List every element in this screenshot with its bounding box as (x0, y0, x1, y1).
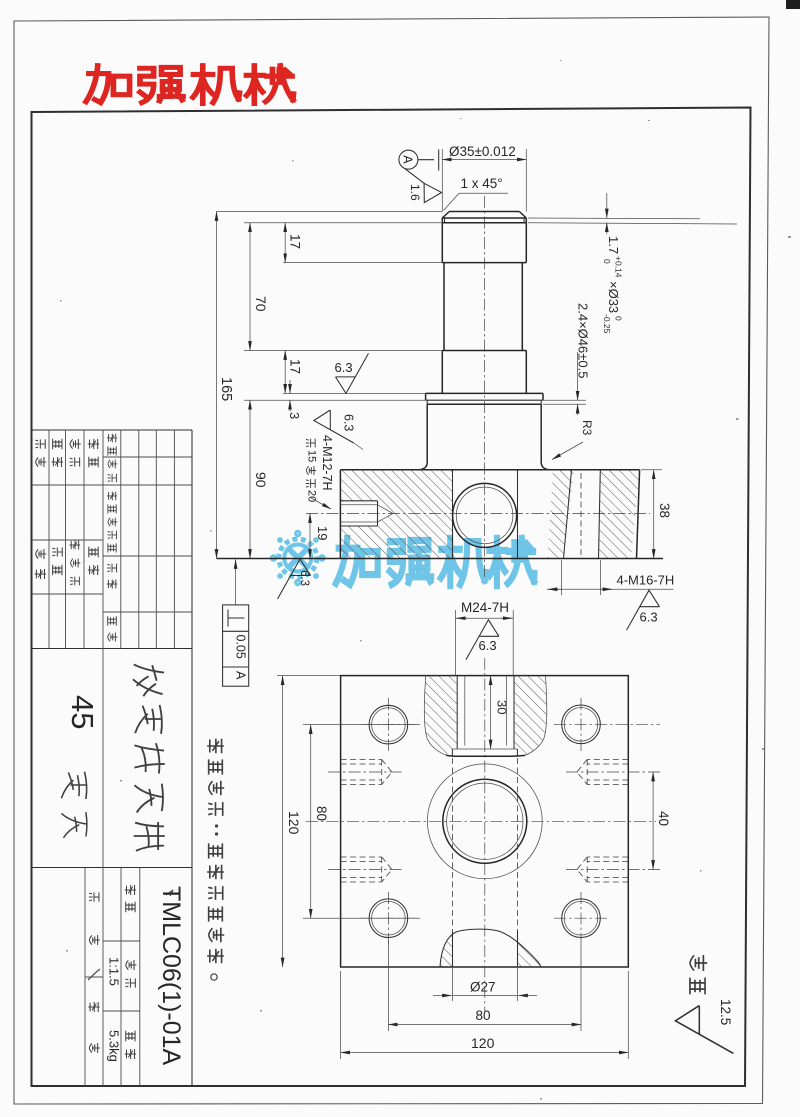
svg-text:4-M12-7H: 4-M12-7H (320, 435, 334, 491)
svg-text:×Ø33: ×Ø33 (606, 281, 621, 313)
svg-text:A: A (234, 671, 248, 680)
svg-text:120: 120 (471, 1035, 495, 1051)
svg-text:5.3kg: 5.3kg (107, 1030, 122, 1062)
svg-text:1.7: 1.7 (606, 236, 621, 254)
svg-text:Ø27: Ø27 (470, 980, 496, 995)
svg-text:15: 15 (306, 450, 318, 462)
svg-text:6.3: 6.3 (479, 638, 497, 653)
svg-text:1.6: 1.6 (408, 184, 422, 201)
svg-text:Ø35±0.012: Ø35±0.012 (449, 144, 516, 159)
svg-text:0: 0 (602, 259, 612, 264)
svg-text:17: 17 (288, 234, 303, 249)
svg-text:19: 19 (315, 526, 330, 540)
svg-text:M24-7H: M24-7H (461, 600, 509, 615)
svg-text:90: 90 (253, 472, 269, 488)
svg-text:3: 3 (287, 412, 302, 419)
svg-text:0: 0 (614, 316, 624, 321)
svg-text:38: 38 (657, 503, 672, 518)
svg-text:70: 70 (253, 296, 269, 312)
svg-text:-0.25: -0.25 (602, 314, 612, 334)
svg-text:1:1.5: 1:1.5 (107, 957, 122, 986)
svg-text:6.3: 6.3 (640, 610, 658, 625)
svg-text:6.3: 6.3 (335, 360, 353, 375)
svg-text:40: 40 (656, 811, 671, 826)
svg-text:2.4×Ø46±0.5: 2.4×Ø46±0.5 (576, 303, 591, 378)
svg-text:R3: R3 (580, 420, 594, 436)
svg-text:A: A (401, 155, 415, 164)
svg-text:TMLC06(1)-01A: TMLC06(1)-01A (157, 886, 185, 1066)
svg-text:80: 80 (314, 806, 329, 821)
svg-text:6.3: 6.3 (342, 414, 356, 431)
svg-text:80: 80 (476, 1008, 491, 1023)
svg-text:4-M16-7H: 4-M16-7H (617, 573, 675, 588)
svg-text:1 x 45°: 1 x 45° (461, 176, 503, 191)
svg-text:12.5: 12.5 (718, 999, 733, 1025)
svg-text:165: 165 (218, 377, 234, 401)
svg-text:120: 120 (286, 811, 302, 835)
svg-text:45: 45 (65, 695, 100, 729)
svg-text:17: 17 (288, 359, 303, 374)
svg-text:0.05: 0.05 (234, 635, 248, 659)
svg-text:6.3: 6.3 (298, 570, 310, 586)
svg-text:+0.14: +0.14 (614, 256, 624, 278)
svg-text:30: 30 (495, 700, 510, 714)
